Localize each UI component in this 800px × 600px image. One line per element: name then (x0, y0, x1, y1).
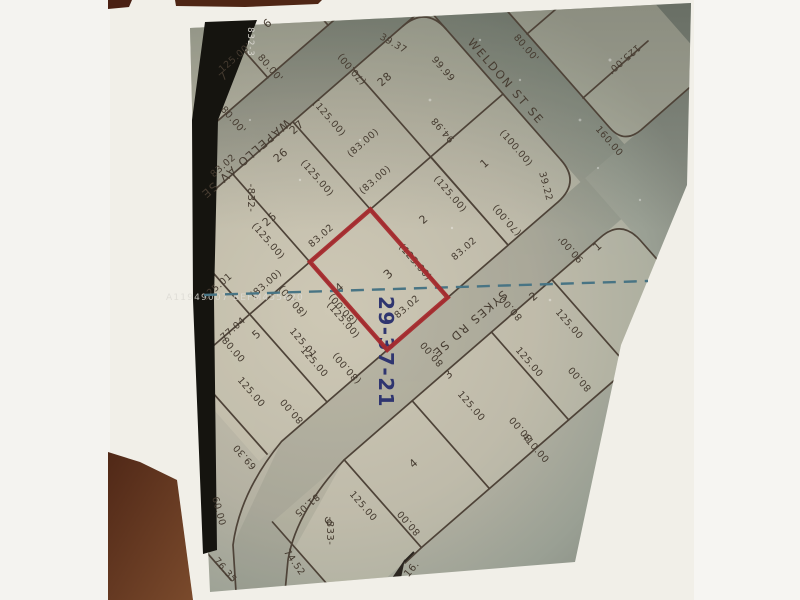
right-margin (694, 0, 800, 600)
scan-edge-label: 832-3 (245, 27, 255, 57)
block-833-number: -833- (324, 517, 335, 546)
section-township-range-stamp: 29-37-21 (374, 296, 398, 408)
plat-map-photo: 6125.00'780.00'80.00'WAPELLO AV SE(70.00… (0, 0, 800, 600)
block-832-number: -832- (245, 184, 256, 213)
plat-map-canvas: 6125.00'780.00'80.00'WAPELLO AV SE(70.00… (0, 0, 800, 600)
